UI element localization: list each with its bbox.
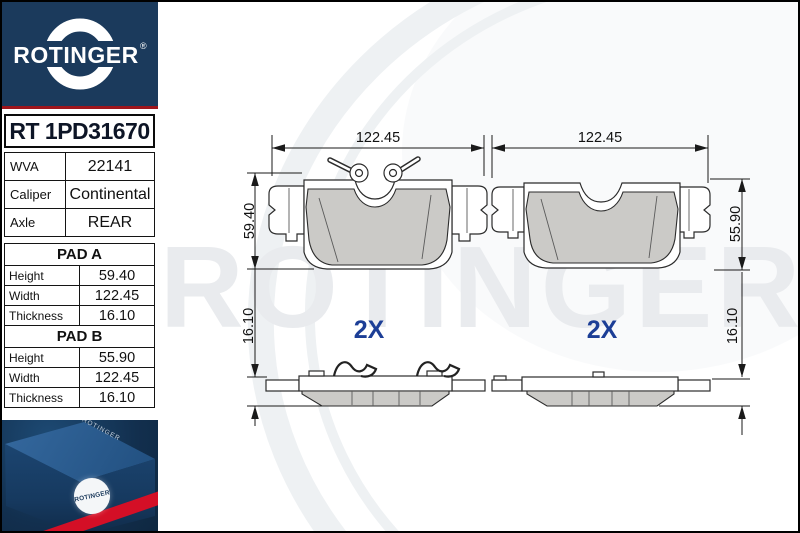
row-value: 122.45 — [80, 368, 155, 388]
spec-row-caliper: Caliper Continental — [5, 181, 155, 209]
dim-pad-a-thickness: 16.10 — [241, 308, 257, 344]
dim-pad-b-width: 122.45 — [578, 130, 622, 146]
row-label: Thickness — [5, 388, 80, 408]
box-logo-text: ROTINGER — [74, 489, 111, 503]
row-value: 16.10 — [80, 388, 155, 408]
spec-value: 22141 — [66, 153, 155, 181]
brand-disc-icon: ROTINGER ® — [2, 2, 158, 106]
product-box-photo: ROTINGER ROTINGER — [2, 420, 158, 533]
row-label: Width — [5, 368, 80, 388]
wire-clip-left — [334, 362, 376, 376]
catalog-sheet: ROTINGER ® RT 1PD31670 WVA 22141 Caliper… — [0, 0, 800, 533]
row-value: 55.90 — [80, 348, 155, 368]
row-value: 59.40 — [80, 266, 155, 286]
svg-text:ROTINGER: ROTINGER — [13, 42, 138, 68]
spec-value: REAR — [66, 209, 155, 237]
spec-label: Caliper — [5, 181, 66, 209]
spec-row-wva: WVA 22141 — [5, 153, 155, 181]
pad-dimension-table: PAD A Height 59.40 Width 122.45 Thicknes… — [4, 243, 155, 408]
pad-b-top-view — [492, 372, 710, 406]
pad-a-top-view — [266, 362, 485, 406]
pad-b-quantity-label: 2X — [587, 316, 618, 344]
pad-a-row-height: Height 59.40 — [5, 266, 155, 286]
pad-b-row-height: Height 55.90 — [5, 348, 155, 368]
row-value: 122.45 — [80, 286, 155, 306]
row-label: Thickness — [5, 306, 80, 326]
brand-logo: ROTINGER ® — [2, 2, 158, 109]
pad-b-row-width: Width 122.45 — [5, 368, 155, 388]
spec-label: Axle — [5, 209, 66, 237]
spec-value: Continental — [66, 181, 155, 209]
row-label: Width — [5, 286, 80, 306]
dim-pad-a-width: 122.45 — [356, 130, 400, 146]
technical-drawing: ROTINGER 122.45 122.45 59.40 55.90 — [158, 2, 800, 531]
pad-a-row-thickness: Thickness 16.10 — [5, 306, 155, 326]
pad-b-row-thickness: Thickness 16.10 — [5, 388, 155, 408]
dim-pad-b-thickness: 16.10 — [725, 308, 741, 344]
left-panel: ROTINGER ® RT 1PD31670 WVA 22141 Caliper… — [2, 2, 158, 533]
pad-a-title: PAD A — [5, 244, 155, 266]
spec-label: WVA — [5, 153, 66, 181]
pad-b-title: PAD B — [5, 326, 155, 348]
spec-table: WVA 22141 Caliper Continental Axle REAR — [4, 152, 155, 237]
row-label: Height — [5, 266, 80, 286]
dim-pad-a-height: 59.40 — [242, 203, 258, 239]
brand-name: ROTINGER — [13, 42, 138, 68]
spec-row-axle: Axle REAR — [5, 209, 155, 237]
pad-a-row-width: Width 122.45 — [5, 286, 155, 306]
row-value: 16.10 — [80, 306, 155, 326]
dim-pad-b-height: 55.90 — [728, 206, 744, 242]
registered-mark: ® — [140, 41, 147, 51]
row-label: Height — [5, 348, 80, 368]
pad-a-quantity-label: 2X — [354, 316, 385, 344]
part-number: RT 1PD31670 — [4, 114, 155, 148]
watermark: ROTINGER — [160, 2, 800, 531]
